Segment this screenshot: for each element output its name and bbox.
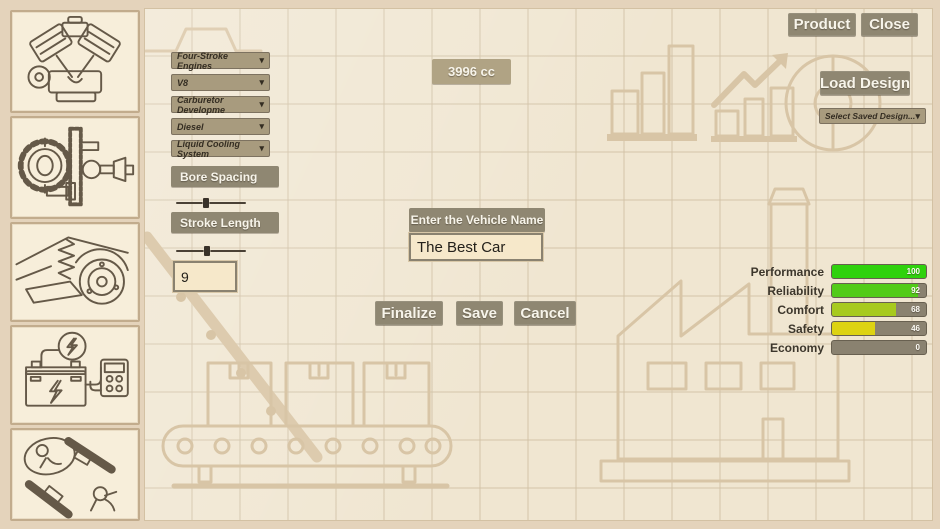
stat-row-safety: Safety 46 xyxy=(705,321,932,337)
battery-icon xyxy=(12,327,138,423)
stroke-value-input[interactable]: 9 xyxy=(173,261,237,292)
sidebar-item-drivetrain[interactable] xyxy=(10,116,140,219)
displacement-badge: 3996 cc xyxy=(432,59,511,84)
safety-bar: 46 xyxy=(831,321,927,336)
cancel-button[interactable]: Cancel xyxy=(514,301,576,325)
comfort-bar: 68 xyxy=(831,302,927,317)
stat-row-comfort: Comfort 68 xyxy=(705,302,932,318)
fuel-type-dropdown[interactable]: Diesel ▾ xyxy=(171,118,270,135)
stat-value: 92 xyxy=(911,284,920,297)
chevron-down-icon: ▾ xyxy=(259,144,264,153)
chevron-down-icon: ▾ xyxy=(259,56,264,65)
reliability-bar: 92 xyxy=(831,283,927,298)
stat-value: 68 xyxy=(911,303,920,316)
engine-icon xyxy=(12,12,138,111)
cylinder-layout-dropdown[interactable]: V8 ▾ xyxy=(171,74,270,91)
engine-type-dropdown[interactable]: Four-Stroke Engines ▾ xyxy=(171,52,270,69)
bore-spacing-label: Bore Spacing xyxy=(171,166,279,187)
stat-label: Safety xyxy=(674,321,824,337)
slider-thumb[interactable] xyxy=(203,198,209,208)
cylinder-layout-value: V8 xyxy=(177,78,188,88)
stat-row-reliability: Reliability 92 xyxy=(705,283,932,299)
stat-label: Comfort xyxy=(674,302,824,318)
chevron-down-icon: ▾ xyxy=(915,112,920,121)
stat-value: 100 xyxy=(907,265,920,278)
stat-value: 46 xyxy=(911,322,920,335)
economy-bar: 0 xyxy=(831,340,927,355)
save-button[interactable]: Save xyxy=(456,301,503,325)
bar-fill xyxy=(832,284,918,297)
cooling-system-value: Liquid Cooling System xyxy=(177,139,259,159)
saved-design-dropdown[interactable]: Select Saved Design... ▾ xyxy=(819,108,926,124)
fuel-type-value: Diesel xyxy=(177,122,204,132)
product-button[interactable]: Product xyxy=(788,13,856,36)
slider-thumb[interactable] xyxy=(204,246,210,256)
sidebar-item-electrics[interactable] xyxy=(10,325,140,425)
stat-label: Performance xyxy=(674,264,824,280)
stroke-length-slider[interactable] xyxy=(176,246,246,256)
slider-track xyxy=(176,202,246,204)
slider-track xyxy=(176,250,246,252)
chevron-down-icon: ▾ xyxy=(259,122,264,131)
bar-fill xyxy=(832,303,896,316)
sidebar-item-suspension[interactable] xyxy=(10,222,140,322)
finalize-button[interactable]: Finalize xyxy=(375,301,443,325)
chevron-down-icon: ▾ xyxy=(259,78,264,87)
engine-type-value: Four-Stroke Engines xyxy=(177,51,259,71)
suspension-icon xyxy=(12,224,138,320)
vehicle-name-input[interactable]: The Best Car xyxy=(409,233,543,261)
vehicle-name-label: Enter the Vehicle Name xyxy=(409,208,545,232)
fuel-system-dropdown[interactable]: Carburetor Developme ▾ xyxy=(171,96,270,113)
bar-fill xyxy=(832,322,875,335)
sidebar-item-engine[interactable] xyxy=(10,10,140,113)
stat-label: Reliability xyxy=(674,283,824,299)
close-button[interactable]: Close xyxy=(861,13,918,36)
drivetrain-icon xyxy=(12,118,138,217)
stat-row-performance: Performance 100 xyxy=(705,264,932,280)
seatbelt-icon xyxy=(12,430,138,519)
bore-spacing-slider[interactable] xyxy=(176,198,246,208)
stroke-length-label: Stroke Length xyxy=(171,212,279,233)
design-canvas: Product Close Four-Stroke Engines ▾ V8 ▾… xyxy=(144,8,933,521)
cooling-system-dropdown[interactable]: Liquid Cooling System ▾ xyxy=(171,140,270,157)
saved-design-value: Select Saved Design... xyxy=(825,111,915,121)
fuel-system-value: Carburetor Developme xyxy=(177,95,259,115)
design-screen: Product Close Four-Stroke Engines ▾ V8 ▾… xyxy=(0,0,940,529)
load-design-button[interactable]: Load Design xyxy=(820,71,910,95)
stat-value: 0 xyxy=(916,341,920,354)
sidebar-item-safety[interactable] xyxy=(10,428,140,521)
stat-row-economy: Economy 0 xyxy=(705,340,932,356)
stat-label: Economy xyxy=(674,340,824,356)
performance-bar: 100 xyxy=(831,264,927,279)
chevron-down-icon: ▾ xyxy=(259,100,264,109)
